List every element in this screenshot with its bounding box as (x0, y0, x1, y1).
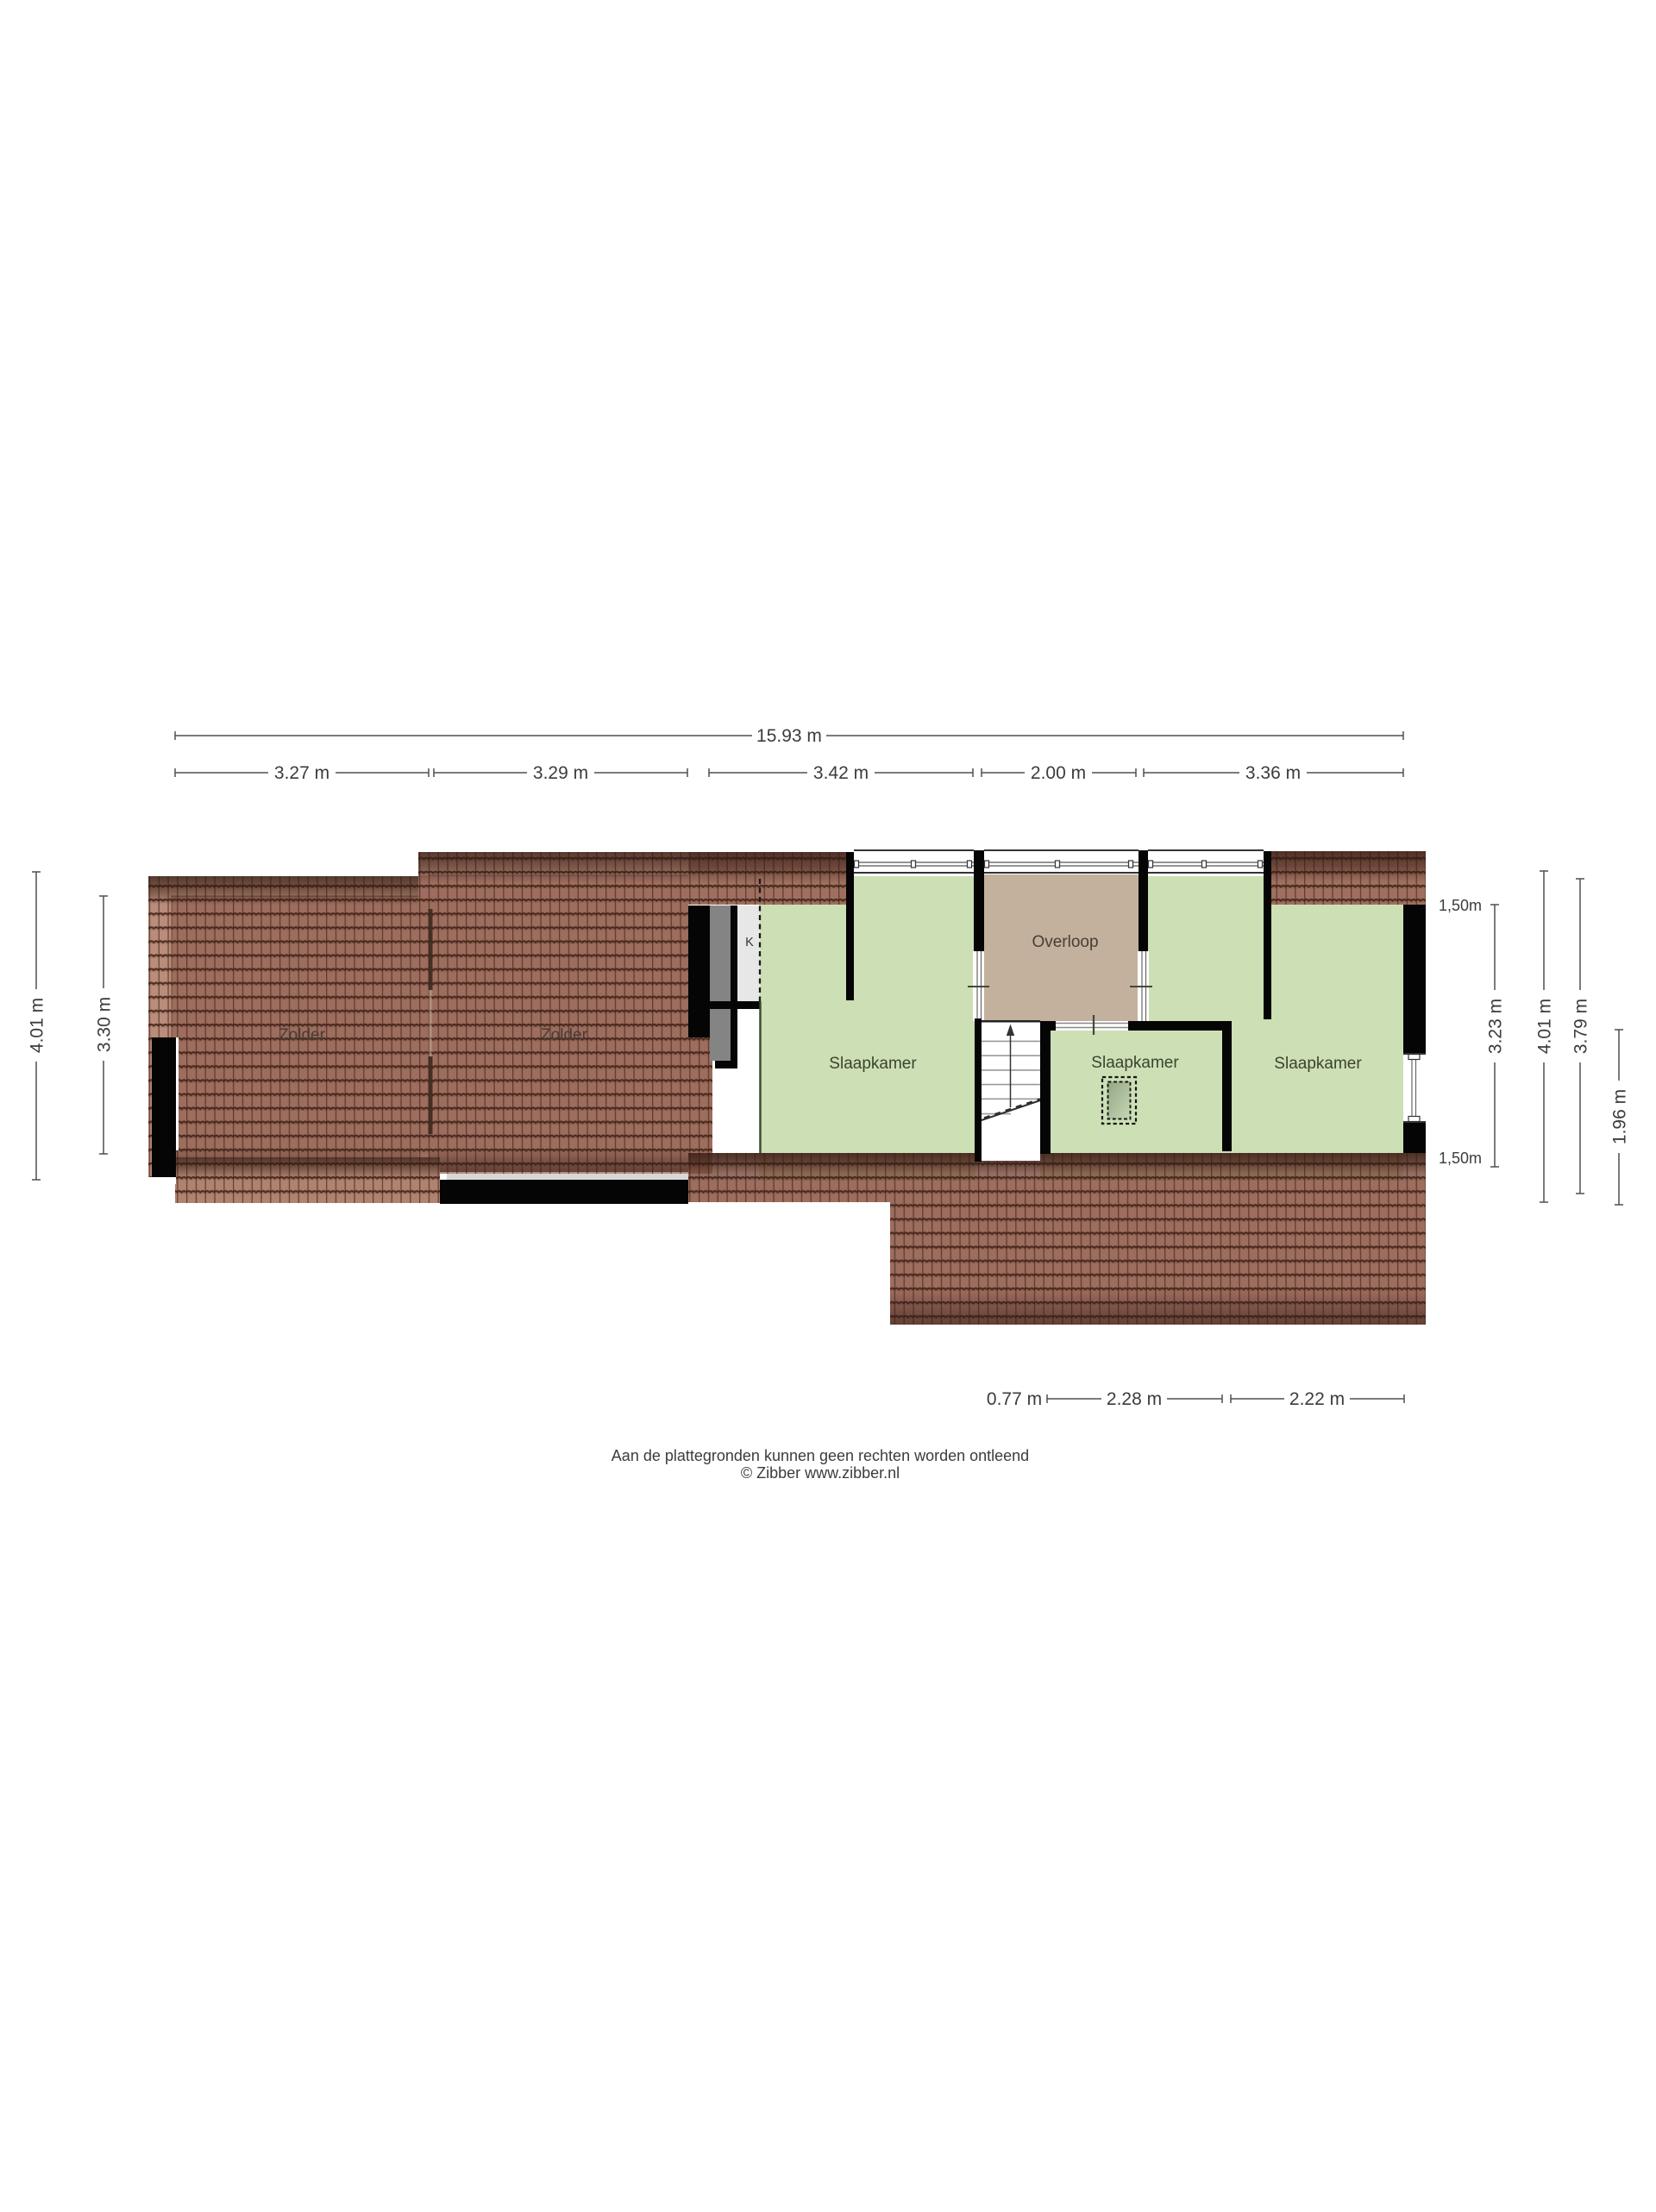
svg-text:K: K (745, 936, 754, 949)
svg-text:Zolder: Zolder (279, 1026, 326, 1044)
svg-text:Slaapkamer: Slaapkamer (1091, 1054, 1179, 1072)
svg-text:1,50m: 1,50m (1439, 1150, 1482, 1167)
svg-text:4.01 m: 4.01 m (1535, 999, 1555, 1054)
svg-text:15.93 m: 15.93 m (756, 726, 822, 746)
svg-text:Slaapkamer: Slaapkamer (1274, 1055, 1362, 1073)
svg-text:3.42 m: 3.42 m (813, 763, 869, 783)
svg-text:Overloop: Overloop (1032, 933, 1098, 951)
svg-text:1,50m: 1,50m (1439, 897, 1482, 914)
svg-text:3.36 m: 3.36 m (1245, 763, 1301, 783)
svg-text:3.79 m: 3.79 m (1571, 999, 1591, 1054)
svg-text:3.30 m: 3.30 m (95, 997, 115, 1052)
svg-text:4.01 m: 4.01 m (28, 998, 47, 1053)
svg-text:2.00 m: 2.00 m (1031, 763, 1086, 783)
svg-text:Zolder: Zolder (541, 1026, 588, 1044)
svg-text:Slaapkamer: Slaapkamer (829, 1055, 917, 1073)
svg-text:2.28 m: 2.28 m (1107, 1389, 1162, 1409)
svg-text:Aan de plattegronden kunnen ge: Aan de plattegronden kunnen geen rechten… (612, 1447, 1029, 1464)
svg-text:2.22 m: 2.22 m (1289, 1389, 1345, 1409)
svg-text:3.23 m: 3.23 m (1486, 999, 1506, 1054)
svg-text:3.27 m: 3.27 m (274, 763, 329, 783)
svg-text:1.96 m: 1.96 m (1610, 1089, 1630, 1144)
svg-text:3.29 m: 3.29 m (533, 763, 588, 783)
svg-text:© Zibber www.zibber.nl: © Zibber www.zibber.nl (741, 1464, 900, 1482)
svg-text:0.77 m: 0.77 m (987, 1389, 1042, 1409)
